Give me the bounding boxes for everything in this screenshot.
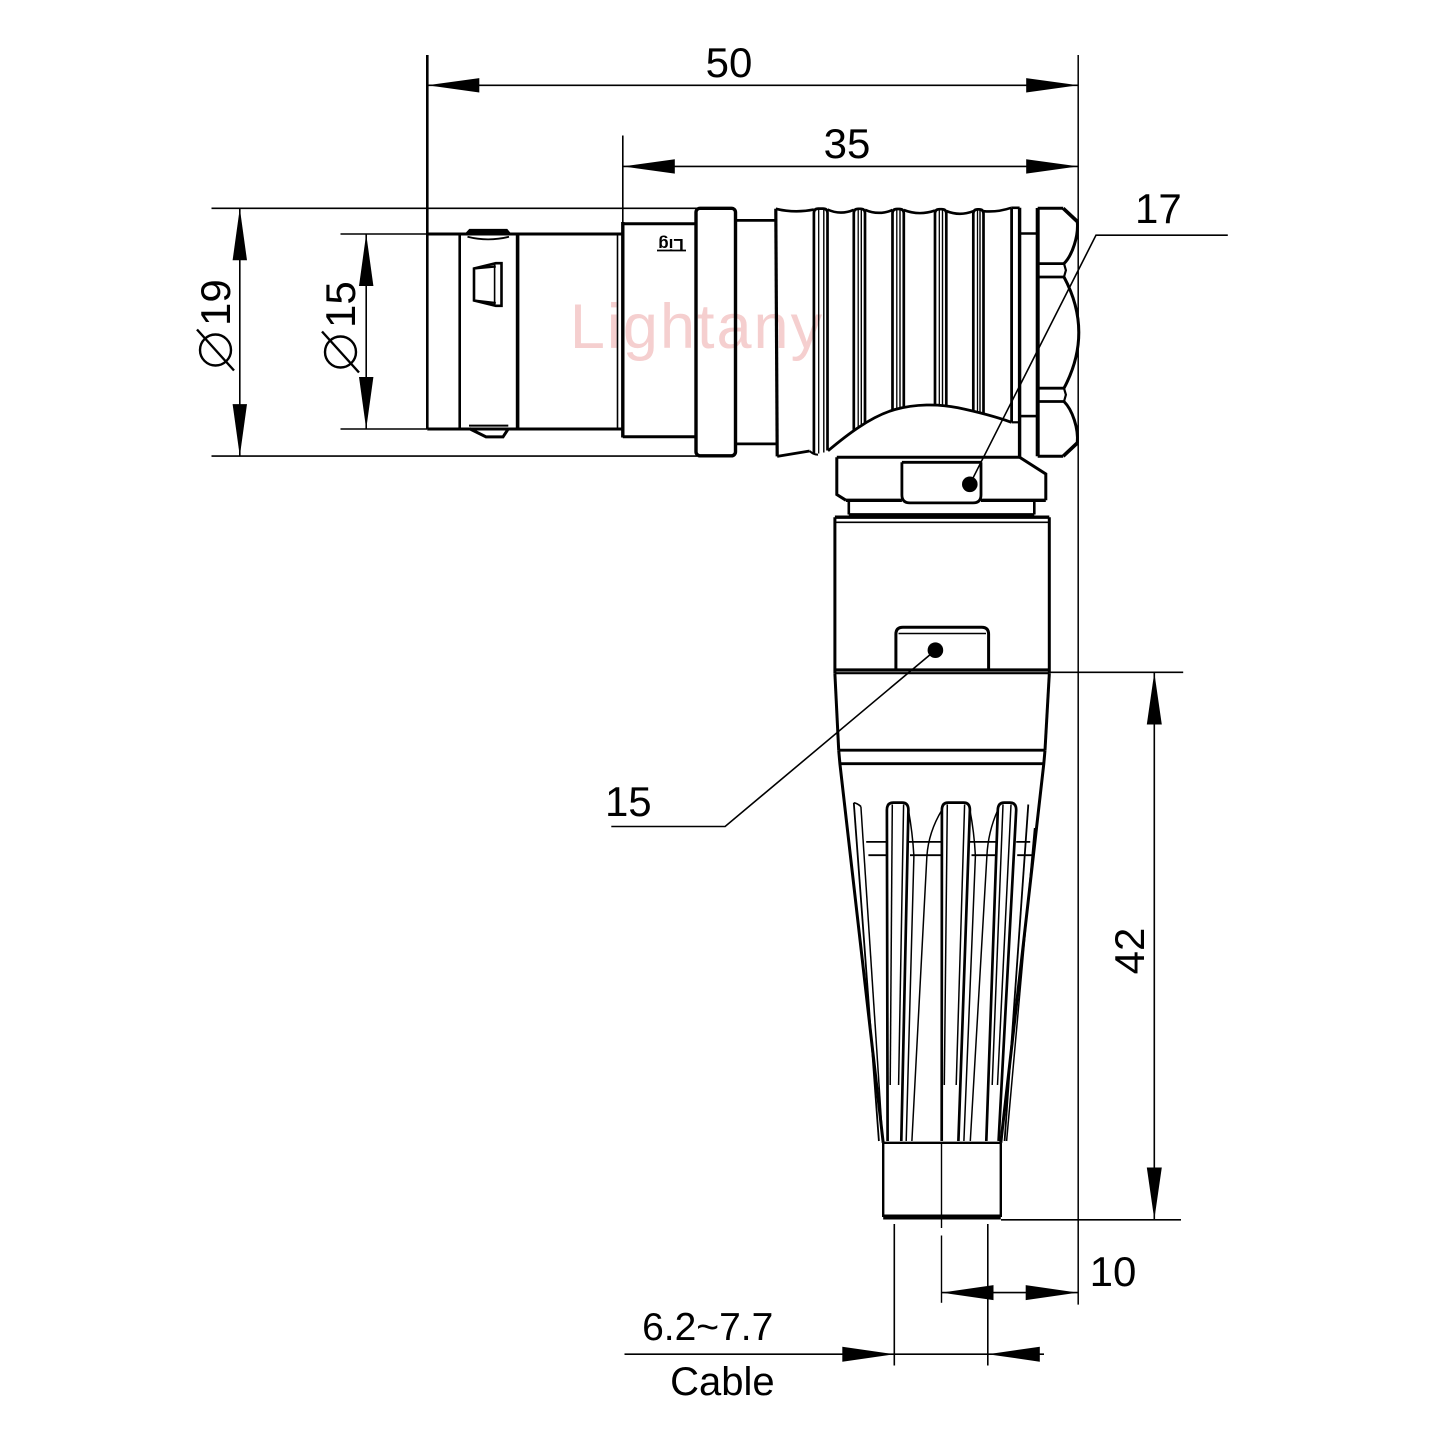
- svg-text:42: 42: [1106, 928, 1153, 975]
- svg-text:19: 19: [192, 279, 239, 326]
- svg-text:Cable: Cable: [670, 1360, 775, 1404]
- svg-text:10: 10: [1090, 1248, 1137, 1295]
- svg-text:50: 50: [706, 39, 753, 86]
- svg-text:15: 15: [605, 778, 652, 825]
- svg-text:6.2~7.7: 6.2~7.7: [642, 1306, 773, 1349]
- svg-text:15: 15: [317, 281, 364, 328]
- svg-text:17: 17: [1135, 185, 1182, 232]
- svg-text:35: 35: [824, 120, 871, 167]
